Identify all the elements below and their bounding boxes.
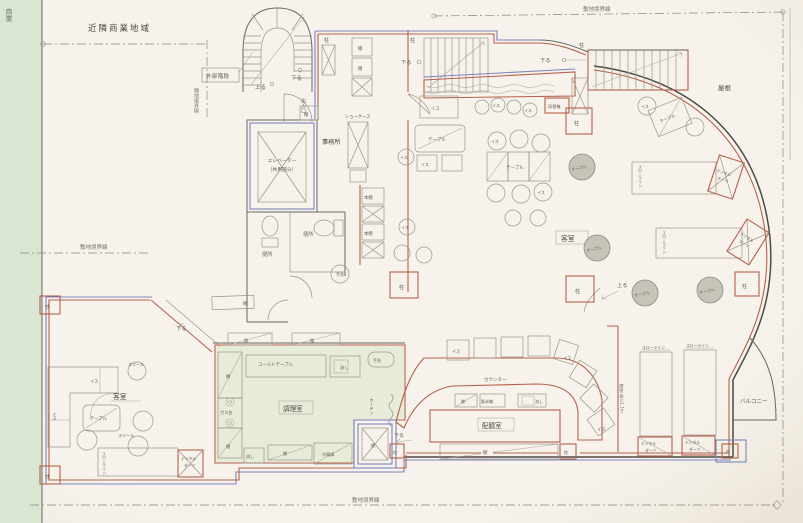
pillar-label: 柱 [579, 42, 584, 49]
floor-plan-sheet: 商業 近隣商業地域 敷地境界線 敷地境界線 敷地境界線 隣地境界線 屋根 上る … [0, 0, 803, 523]
pillar-label: 柱 [574, 120, 579, 127]
gas-stove-label: ガス台 [220, 409, 233, 416]
zoning-strip: 商業 [0, 0, 42, 523]
stair-up-label: 上る [617, 281, 627, 289]
sink-label: 流し [340, 364, 348, 371]
darts-machine-label: デジタル [181, 456, 196, 461]
guest-room-label: 客室 [113, 392, 127, 401]
refrigerator-label: 冷蔵庫 [322, 451, 335, 458]
shelf-label: 棚 [304, 111, 308, 118]
pillar-label: 柱 [742, 283, 747, 290]
showcase-label: ショーケース [345, 113, 371, 120]
pillar-label: 柱 [324, 37, 329, 44]
shelf-label: 棚 [483, 449, 488, 456]
stair-down-label: 下る [540, 57, 550, 64]
chair-label: イス [524, 108, 532, 113]
table-label: テーブル [90, 415, 108, 422]
chair-label: イス [452, 349, 460, 355]
curtain-label: カーテン [370, 398, 375, 416]
chair-label: イス [597, 427, 605, 433]
money-changer-label: 両替機 [548, 103, 561, 110]
hand-wash-label-1: 手洗 [336, 271, 344, 277]
shelf-label: 棚 [226, 373, 230, 380]
chair-label: イス [421, 162, 429, 167]
throw-line-label: スローライン [661, 230, 667, 253]
site-boundary-label-left: 敷地境界線 [80, 243, 108, 251]
pillar-label: 柱 [399, 284, 404, 291]
pillar-label: 柱 [410, 37, 415, 44]
stair-up-label: 上る [255, 83, 266, 91]
pillar-label: 柱 [45, 473, 50, 480]
shelf-label: 棚 [371, 442, 375, 448]
bookshelf-label: 本棚 [364, 230, 373, 237]
bookshelf-label: 本棚 [364, 194, 373, 201]
elevator-note-label: （共用部分） [268, 166, 297, 173]
throw-line-label: スローライン [637, 164, 643, 187]
sink-label: 流し [246, 453, 254, 459]
shelf-label: 棚 [243, 300, 248, 307]
site-boundary-label-bottom: 敷地境界線 [352, 496, 380, 504]
floor-plan-drawing: 商業 近隣商業地域 敷地境界線 敷地境界線 敷地境界線 隣地境界線 屋根 上る … [0, 0, 803, 523]
counter-label: カウンター [484, 376, 507, 383]
chair-label: イス [400, 155, 408, 160]
stool-label: スツール [128, 362, 144, 367]
chair-label: イス [431, 106, 440, 112]
throw-line-label: スローライン [101, 451, 107, 474]
toilet-label-1: 便所 [262, 250, 272, 258]
shelf-label: 棚 [358, 65, 362, 72]
chair-label: イス [52, 412, 57, 421]
chair-label: イス [401, 225, 409, 230]
darts-machine-label: ダーツ [645, 448, 657, 453]
throw-line-label: スローライン [642, 345, 665, 350]
chair-label: イス [491, 139, 499, 144]
shelf-label: 棚 [461, 398, 465, 404]
darts-machine-label: デジタル [641, 441, 656, 446]
elevator-label: エレベーター [268, 157, 297, 164]
hand-wash-label-2: 手洗 [373, 357, 381, 363]
guest-room-label: 客室 [561, 234, 575, 243]
site-boundary-label-top: 敷地境界線 [583, 5, 611, 13]
stair-down-label: 下る [394, 433, 404, 439]
shelf-label: 棚 [226, 443, 230, 450]
chair-label: イス [492, 103, 500, 108]
knee-wall-label: 腰壁 高さ1.1m [620, 384, 625, 413]
shelf-label: 棚 [358, 45, 362, 52]
pillar-label: 柱 [45, 303, 50, 310]
chair-label: イス [90, 379, 98, 385]
darts-machine-label: ダーツ [184, 463, 196, 468]
roof-label: 屋根 [718, 83, 732, 92]
shelf-label: 棚 [283, 450, 287, 457]
darts-machine-label: デジタル [685, 440, 700, 445]
zoning-strip-label: 商業 [5, 7, 13, 23]
ice-maker-label: 製氷機 [481, 398, 493, 404]
chair-label: イス [563, 356, 571, 362]
balcony-label: バルコニー [740, 398, 767, 405]
shelf-label: 棚 [244, 337, 248, 343]
kitchen-label: 調理室 [283, 404, 303, 413]
sink-label: 流し [535, 398, 543, 404]
chair-label: イス [537, 190, 545, 195]
stool-label: スツール [118, 433, 134, 438]
stair-down-label: 下る [401, 59, 411, 66]
pillar-label: 柱 [575, 288, 580, 295]
office-label: 事務所 [322, 138, 341, 146]
stair-down-label: 下る [291, 75, 302, 82]
adjacent-boundary-label: 隣地境界線 [193, 87, 199, 113]
cold-table-label: コールドテーブル [258, 361, 293, 368]
toilet-label-2: 便所 [303, 230, 313, 238]
zoning-area-label: 近隣商業地域 [88, 23, 151, 34]
table-label: テーブル [506, 164, 524, 171]
shelf-label: 棚 [310, 337, 314, 343]
darts-machine-label: ダーツ [689, 447, 701, 452]
exterior-stair-label: 外部階段 [206, 72, 229, 80]
pantry-label: 配膳室 [482, 421, 502, 430]
chair-label: イス [641, 104, 649, 109]
throw-line-label: スローライン [686, 343, 709, 348]
table-label: テーブル [428, 136, 446, 143]
